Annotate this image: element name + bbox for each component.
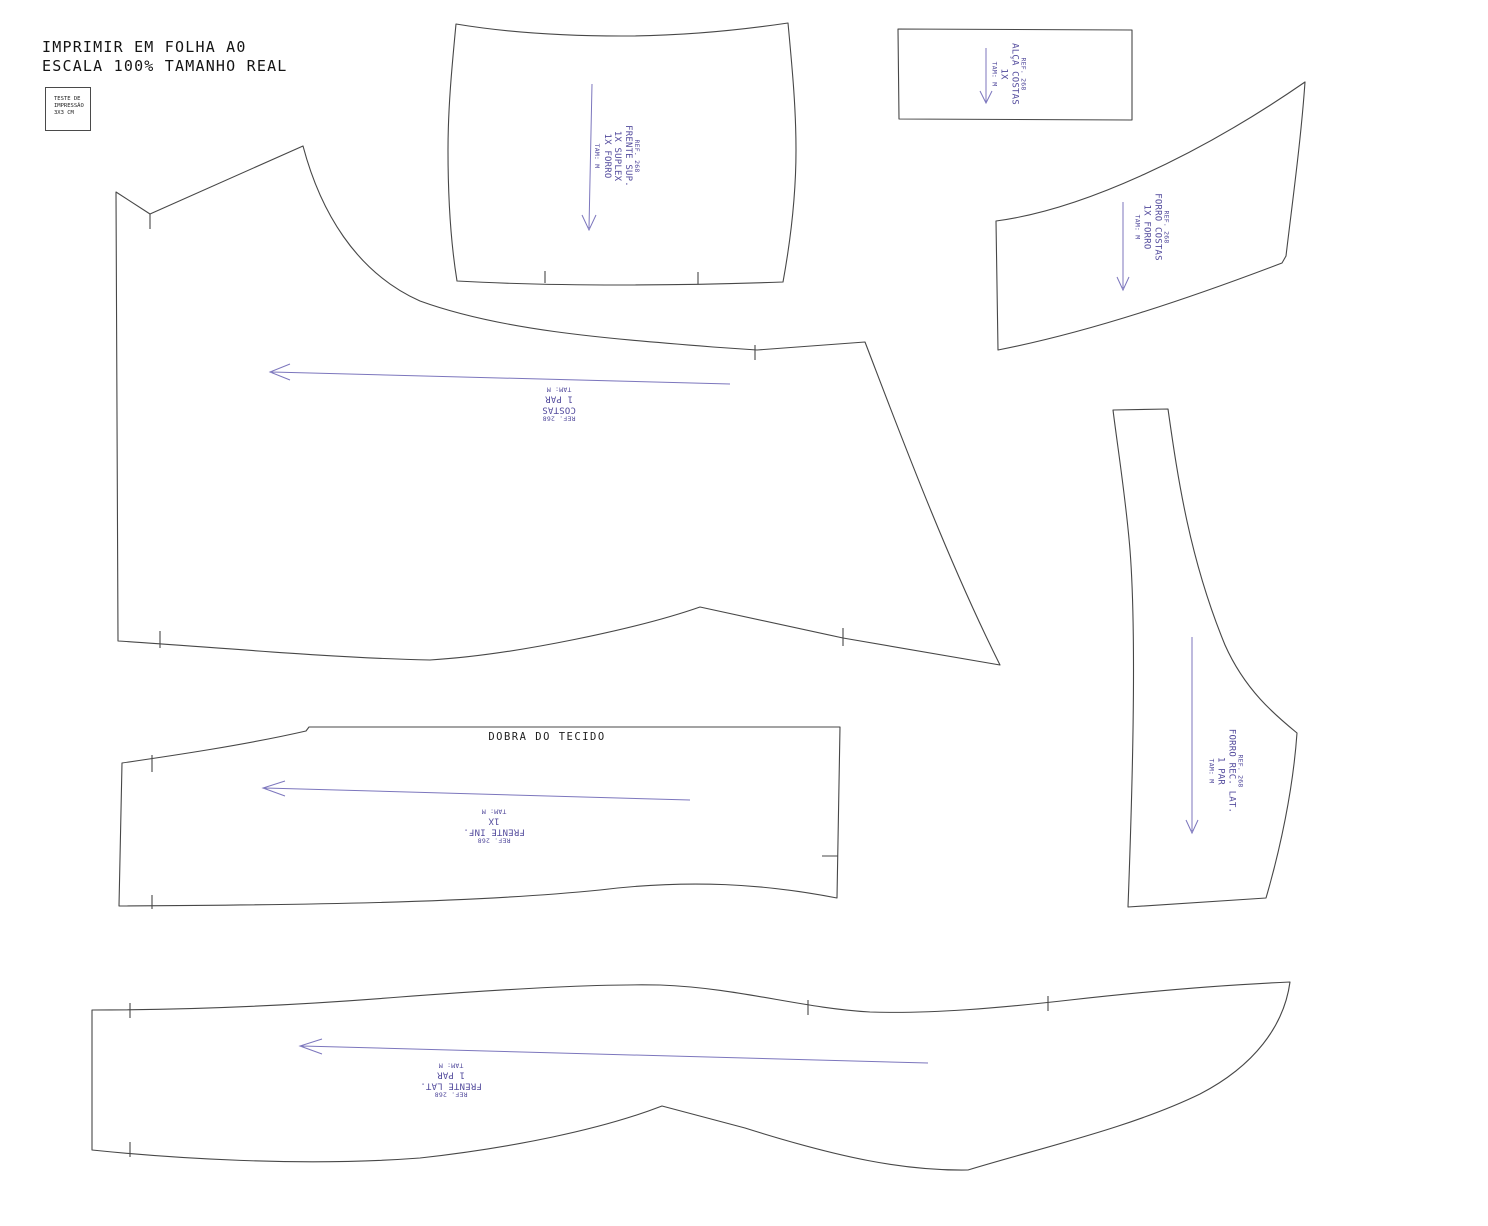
notch-marks (545, 271, 698, 284)
piece-qty: 1 PAR (420, 1070, 482, 1081)
piece-qty: 1 PAR (1216, 729, 1227, 813)
piece-name: COSTAS (542, 404, 576, 415)
piece-ref: REF. 268 (1020, 43, 1028, 105)
piece-ref: REF. 268 (542, 415, 576, 423)
fabric-fold-label: DOBRA DO TECIDO (488, 731, 605, 743)
notch-marks (150, 214, 843, 648)
pattern-sheet: IMPRIMIR EM FOLHA A0 ESCALA 100% TAMANHO… (0, 0, 1488, 1226)
piece-label-frente-sup: REF. 268 FRENTE SUP. 1X SUPLEX 1X FORRO … (593, 125, 641, 187)
piece-ref: REF. 268 (420, 1091, 482, 1099)
pattern-canvas (0, 0, 1488, 1226)
piece-size: TAM: M (542, 386, 576, 394)
piece-size: TAM: M (420, 1062, 482, 1070)
piece-label-alca-costas: REF. 268 ALÇA COSTAS 1X TAM: M (991, 43, 1028, 105)
print-instructions-line2: ESCALA 100% TAMANHO REAL (42, 57, 288, 75)
piece-size: TAM: M (1134, 193, 1142, 260)
piece-ref: REF. 268 (633, 125, 641, 187)
piece-qty: 1X (463, 816, 525, 827)
grain-arrow-icon (270, 364, 730, 384)
piece-frente-lat (92, 982, 1290, 1170)
print-test-square: TESTE DE IMPRESSÃO 3X3 CM (45, 87, 91, 131)
grain-arrow-icon (1117, 202, 1129, 290)
piece-name: FRENTE SUP. (622, 125, 633, 187)
piece-forro-rec-lat (1113, 409, 1297, 907)
test-square-line3: 3X3 CM (54, 110, 90, 117)
piece-ref: REF. 268 (1163, 193, 1171, 260)
piece-qty: 1X FORRO (1142, 193, 1153, 260)
piece-qty: 1 PAR (542, 394, 576, 405)
piece-frente-lat-outline (92, 982, 1290, 1170)
piece-qty: 1X SUPLEX (612, 125, 623, 187)
piece-name: FORRO REC. LAT. (1226, 729, 1237, 813)
piece-name: FORRO COSTAS (1152, 193, 1163, 260)
print-instructions-line1: IMPRIMIR EM FOLHA A0 (42, 38, 247, 56)
notch-marks (130, 996, 1048, 1157)
piece-size: TAM: M (593, 125, 601, 187)
piece-size: TAM: M (463, 808, 525, 816)
grain-arrow-icon (263, 781, 690, 800)
piece-size: TAM: M (1208, 729, 1216, 813)
piece-qty2: 1X FORRO (601, 125, 612, 187)
grain-arrow-icon (300, 1039, 928, 1063)
piece-size: TAM: M (991, 43, 999, 105)
piece-label-frente-lat: REF. 268 FRENTE LAT. 1 PAR TAM: M (420, 1062, 482, 1099)
piece-label-costas: REF. 268 COSTAS 1 PAR TAM: M (542, 386, 576, 423)
piece-name: ALÇA COSTAS (1009, 43, 1020, 105)
piece-forro-rec-lat-outline (1113, 409, 1297, 907)
piece-label-frente-inf: REF. 268 FRENTE INF. 1X TAM: M (463, 808, 525, 845)
piece-qty: 1X (999, 43, 1010, 105)
print-instructions: IMPRIMIR EM FOLHA A0 ESCALA 100% TAMANHO… (42, 38, 288, 76)
piece-ref: REF. 268 (1237, 729, 1245, 813)
grain-arrow-icon (1186, 637, 1198, 833)
test-square-line2: IMPRESSÃO (54, 103, 90, 110)
piece-name: FRENTE INF. (463, 826, 525, 837)
piece-name: FRENTE LAT. (420, 1080, 482, 1091)
piece-label-forro-rec-lat: REF. 268 FORRO REC. LAT. 1 PAR TAM: M (1208, 729, 1245, 813)
piece-label-forro-costas: REF. 268 FORRO COSTAS 1X FORRO TAM: M (1134, 193, 1171, 260)
piece-ref: REF. 268 (463, 837, 525, 845)
